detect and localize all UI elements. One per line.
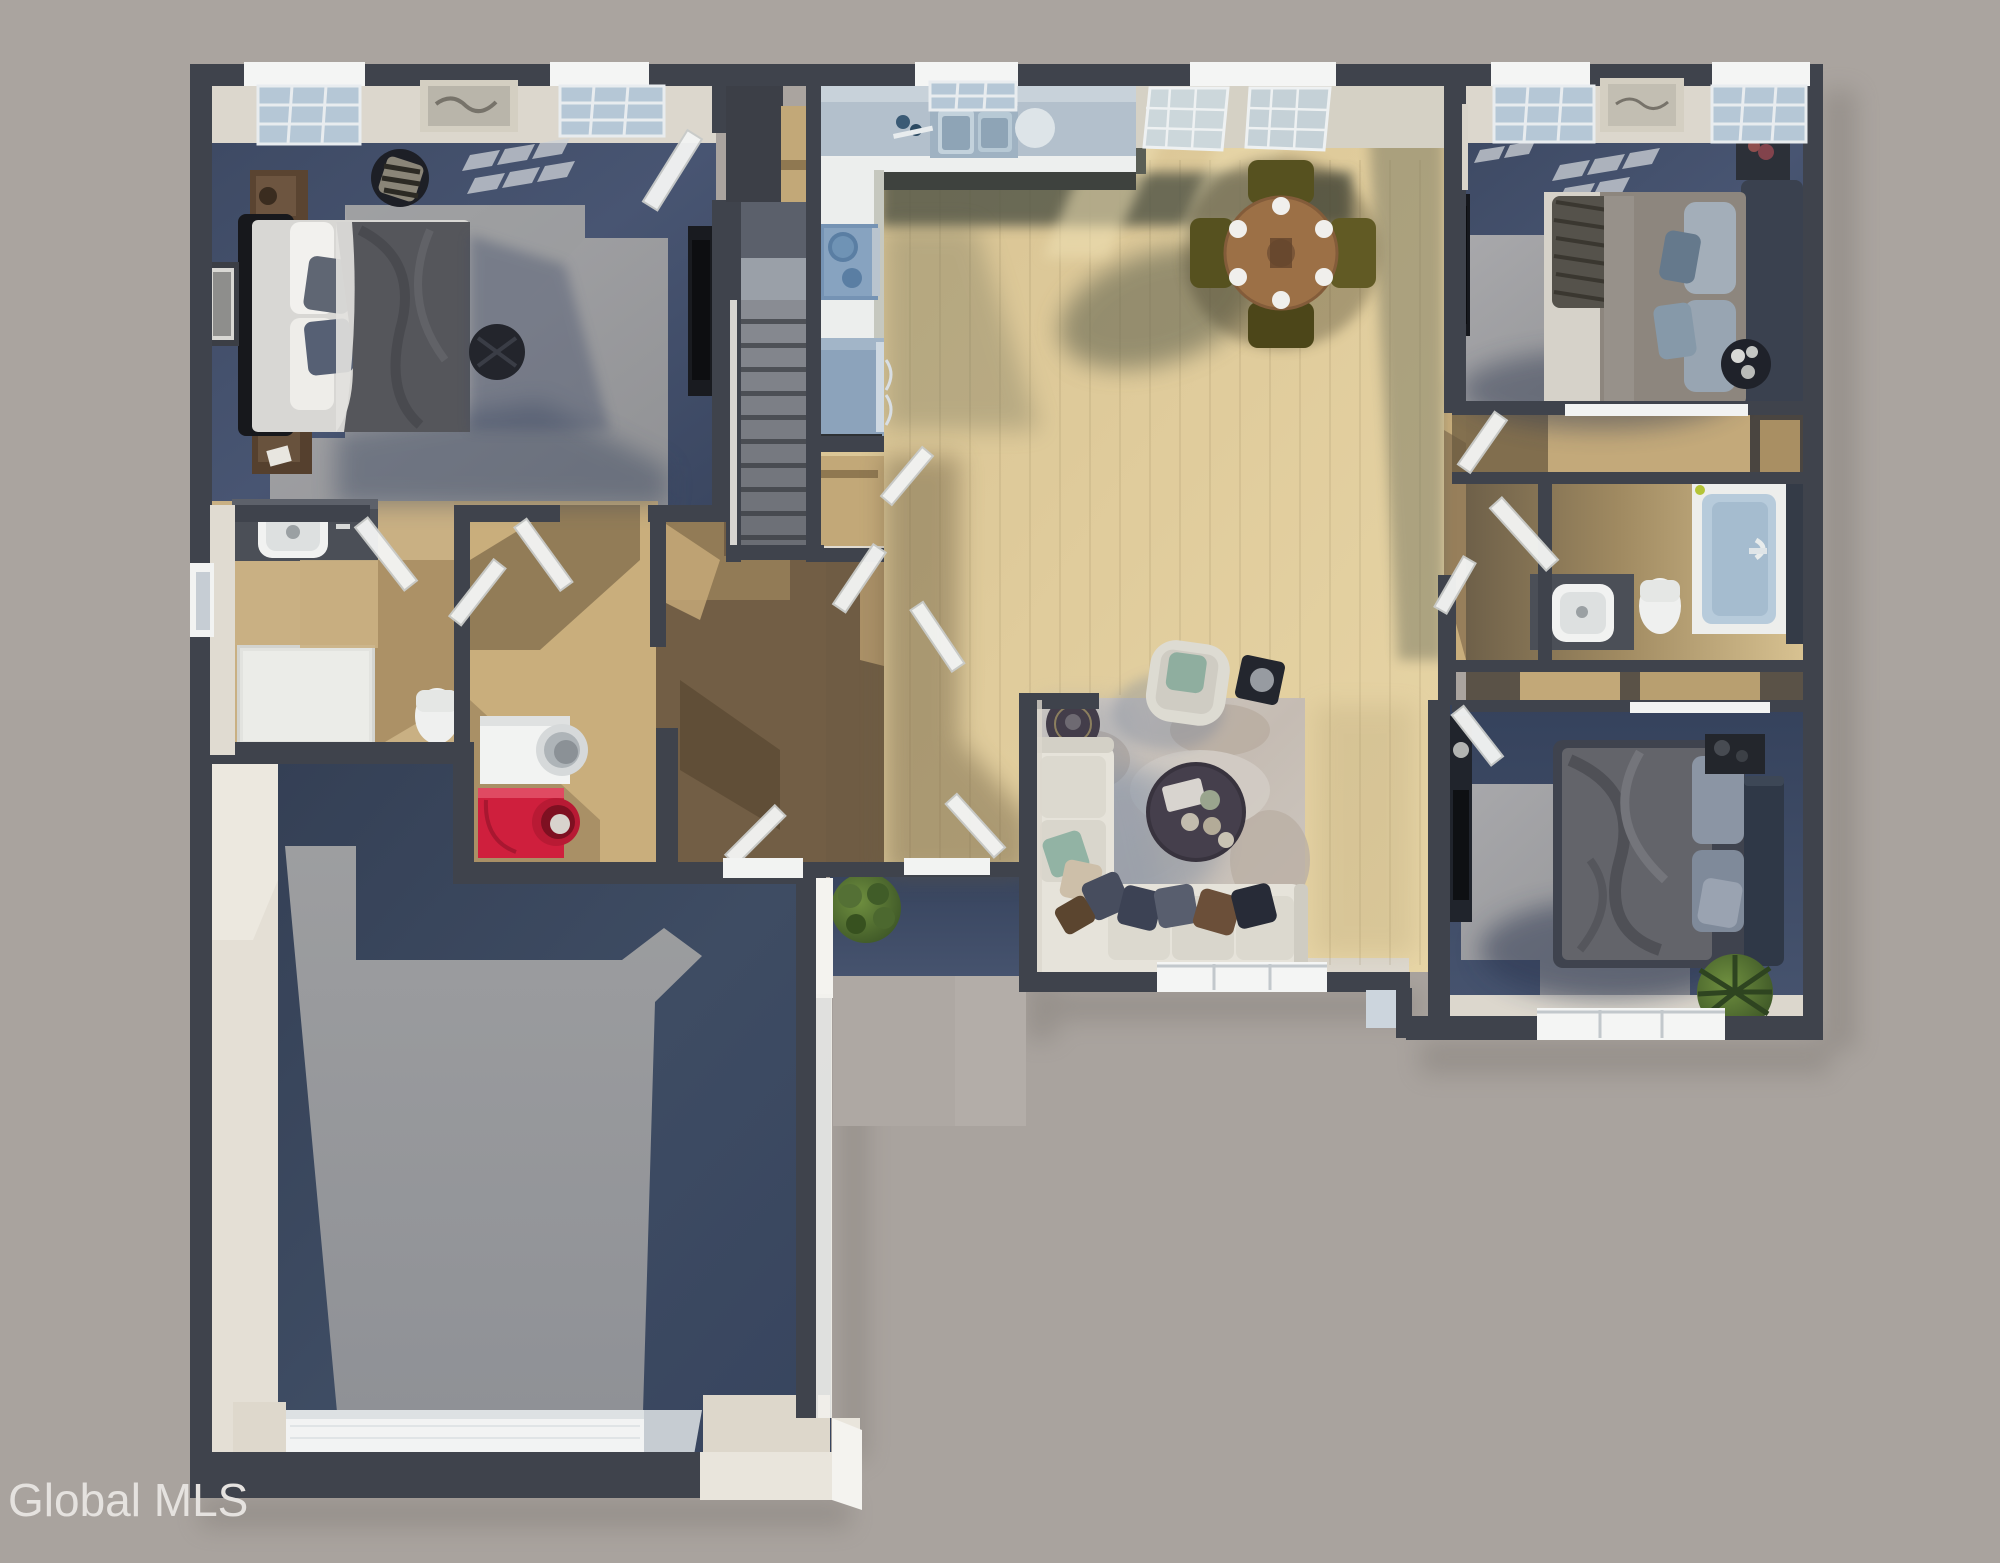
svg-text:Global MLS: Global MLS bbox=[8, 1474, 248, 1526]
